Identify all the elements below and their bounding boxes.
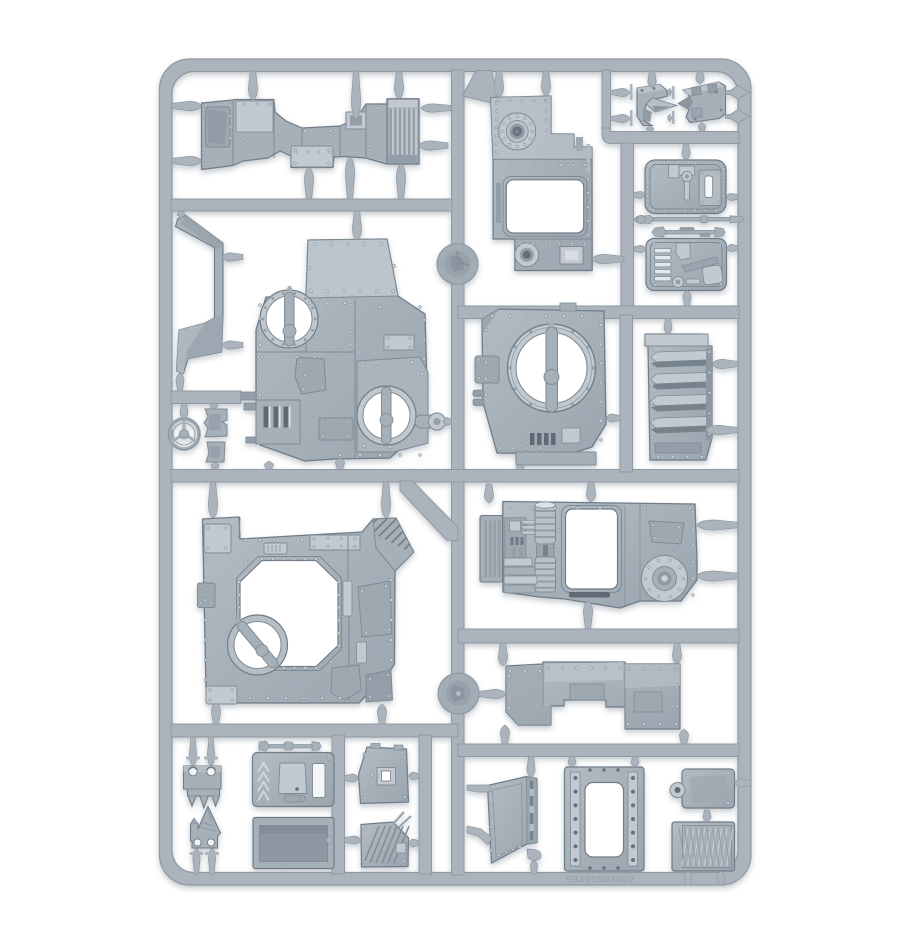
svg-text:99390503002: 99390503002	[566, 875, 635, 886]
